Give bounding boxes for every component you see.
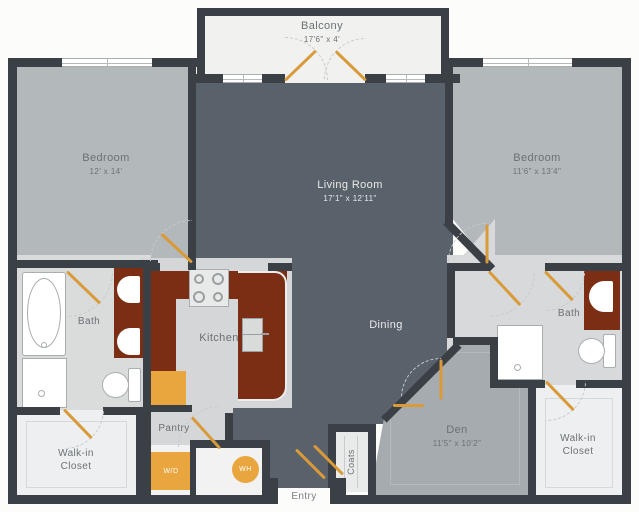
balcony-label: Balcony 17'6" x 4' [272,20,372,45]
living-room-name: Living Room [290,179,410,193]
bath-left-name: Bath [59,316,119,329]
living-room-label: Living Room 17'1" x 12'11" [290,179,410,204]
toilet-left-bowl [102,372,129,398]
shower-left-drain [38,390,45,397]
balcony-window-left [223,74,262,83]
pantry-name: Pantry [144,423,204,436]
vanity-left-sink-2 [117,328,140,355]
bath-kitchen-divider [143,263,151,413]
kitchen-label: Kitchen [179,332,259,346]
entry-jamb-left [262,478,278,497]
bedroom-left-south-wall [17,260,158,268]
bath-closet-divider-a [17,407,60,415]
den-label: Den 11'5" x 10'2" [407,424,507,449]
wall-right [622,58,631,504]
shower-left [22,358,67,408]
bedroom-left-name: Bedroom [56,152,156,166]
den-door-vertical [440,360,443,400]
water-heater: WH [232,456,259,483]
kitchen-faucet [261,333,269,335]
balcony-dims: 17'6" x 4' [272,35,372,45]
toilet-right-bowl [578,338,605,364]
bathtub-drain [41,342,47,348]
walk-in-closet-right-name: Walk-in Closet [548,433,608,458]
shower-right [497,325,543,380]
walk-in-closet-left-label: Walk-in Closet [36,448,116,473]
bedroom-right-label: Bedroom 11'6" x 13'4" [487,152,587,177]
bedroom-left-window [62,58,152,67]
bath-left-label: Bath [59,316,119,329]
kitchen-top-stub-right [268,263,292,271]
stove-burner-3 [193,291,205,303]
dining-label: Dining [346,319,426,333]
pantry-label: Pantry [144,423,204,436]
closet-right-west-wall [528,382,536,497]
washer-dryer-label: W/D [163,468,178,475]
balcony-wall-top [197,8,449,16]
balcony-name: Balcony [272,20,372,34]
water-heater-label: WH [239,466,252,473]
washer-dryer: W/D [150,452,192,490]
kitchen-top-stub-left [143,263,160,271]
stove-burner-4 [213,292,223,302]
dining-name: Dining [346,319,426,333]
walk-in-closet-left-name: Walk-in Closet [46,448,106,473]
den-door-horizontal [393,404,424,407]
bathtub-basin [27,278,61,348]
shower-right-drain [514,364,521,371]
living-room-dims: 17'1" x 12'11" [290,194,410,204]
balcony-window-right [386,74,425,83]
kitchen-pantry-divider [143,405,192,412]
hall-right-top-wall-b [545,263,622,271]
vanity-left-sink-1 [117,276,140,303]
bedroom-right-dims: 11'6" x 13'4" [487,167,587,177]
bedroom-right-name: Bedroom [487,152,587,166]
entry-name: Entry [278,491,330,504]
bath-right-bottom-wall-a [490,380,545,388]
bedroom-right-west-wall [445,58,453,223]
entry-label: Entry [278,491,330,504]
toilet-left-tank [128,368,141,402]
hall-right-west-wall [447,263,455,338]
bath-right-label: Bath [539,308,599,321]
den-dims: 11'5" x 10'2" [407,439,507,449]
floor-plan: W/D WH [0,0,639,512]
wall-left [8,58,17,504]
bedroom-right-door [486,225,489,264]
den-name: Den [407,424,507,438]
dishwasher [148,371,186,405]
bath-right-name: Bath [539,308,599,321]
stove-burner-1 [194,274,204,284]
kitchen-name: Kitchen [179,332,259,346]
coats-label: Coats [331,442,371,482]
bedroom-left-dims: 12' x 14' [56,167,156,177]
balcony-wall-left [197,8,205,74]
bedroom-left-label: Bedroom 12' x 14' [56,152,156,177]
walk-in-closet-right-label: Walk-in Closet [538,433,618,458]
wd-wh-divider [190,448,196,497]
living-room-floor [196,80,453,270]
bedroom-right-window [483,58,572,67]
coats-name: Coats [331,442,371,482]
stove-burner-2 [212,273,224,285]
